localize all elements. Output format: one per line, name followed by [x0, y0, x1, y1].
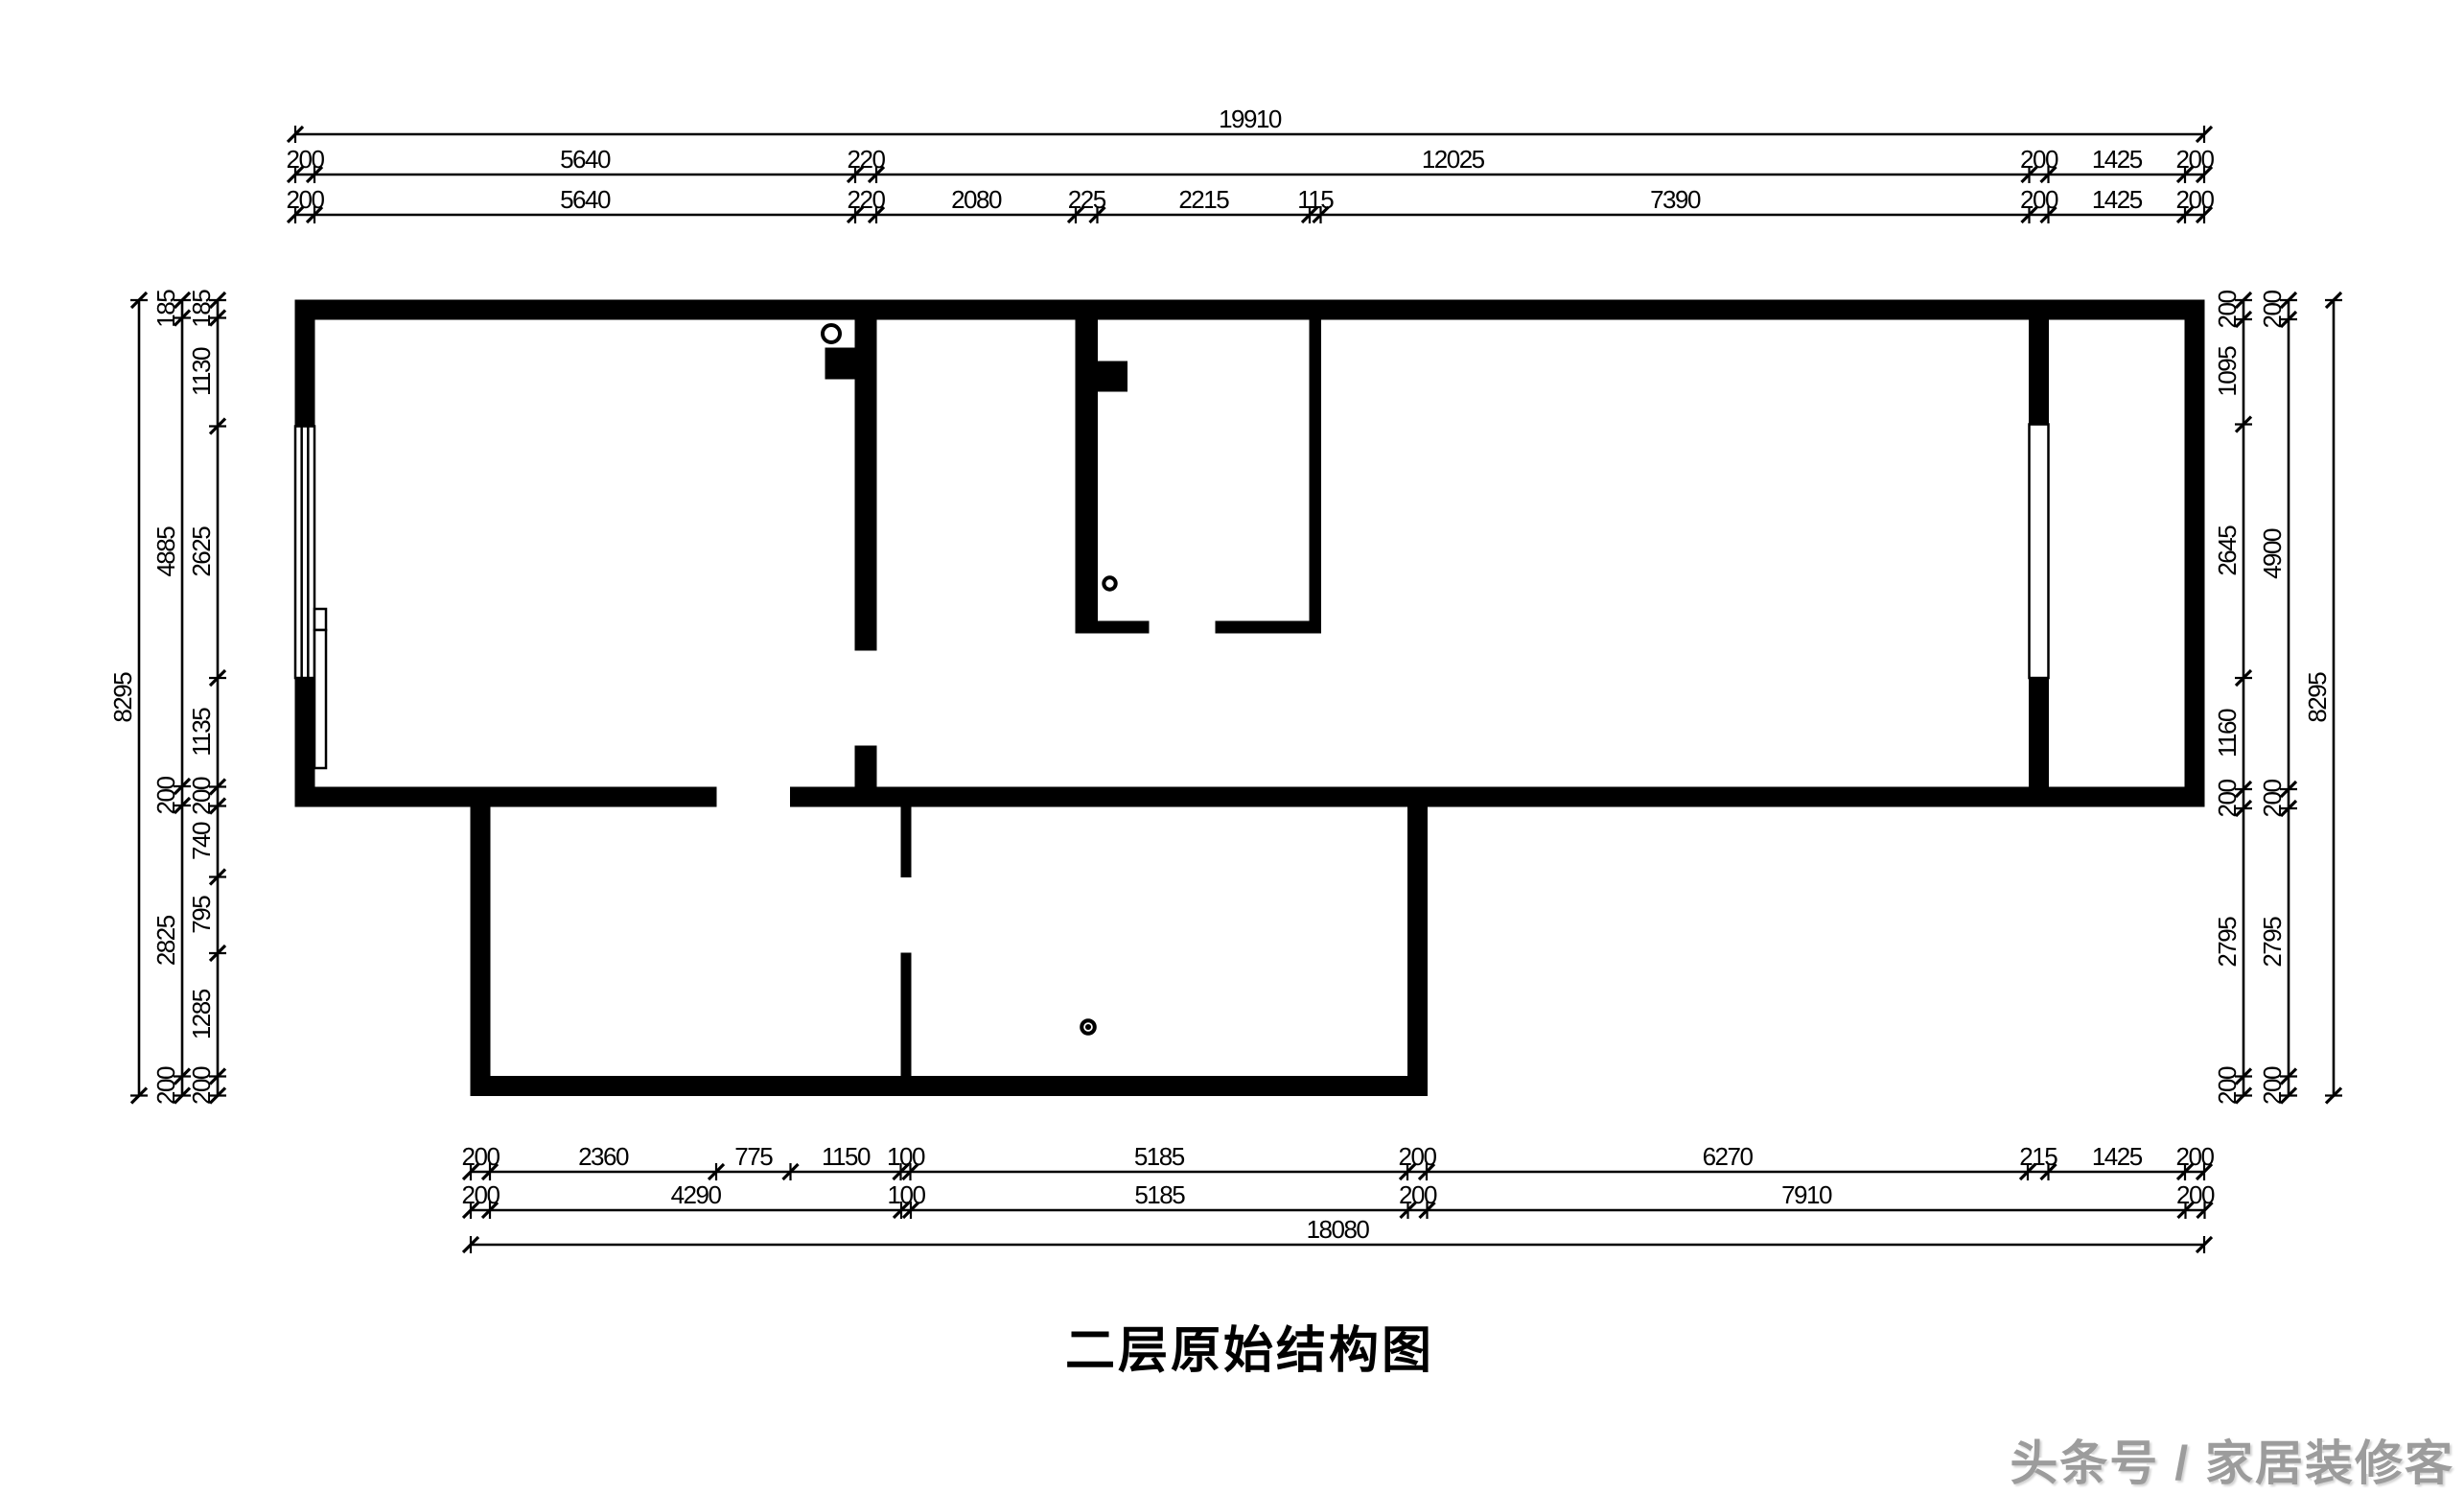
dim-value: 19910 [1219, 105, 1282, 133]
dim-value: 2795 [2213, 917, 2242, 968]
dim-value: 200 [2213, 1066, 2242, 1105]
page-title: 二层原始结构图 [295, 1310, 2204, 1382]
dim-value: 2795 [2258, 917, 2287, 968]
wall-b-lower [2030, 678, 2049, 787]
left-overall: 8295 [108, 292, 148, 1104]
bottom-overall: 18080 [463, 1215, 2212, 1253]
dim-value: 1160 [2213, 709, 2242, 758]
wall-b-opening [2030, 425, 2049, 679]
mid-wall-right [791, 787, 2205, 806]
dim-value: 200 [287, 145, 325, 174]
dim-value: 200 [2176, 185, 2215, 214]
dim-value: 115 [1297, 185, 1334, 214]
dim-value: 7910 [1781, 1180, 1832, 1209]
dim-value: 775 [734, 1142, 773, 1171]
dim-value: 795 [187, 896, 216, 934]
dim-value: 220 [848, 145, 886, 174]
bottom-row-2: 200429010051852007910200 [462, 1180, 2215, 1219]
dim-value: 200 [2258, 1066, 2287, 1105]
pipe-circle-midroom [1104, 577, 1115, 589]
left-col-2: 18548852002825200 [151, 290, 191, 1105]
dim-value: 1425 [2092, 1142, 2143, 1171]
dim-value: 185 [187, 290, 216, 328]
pier-on-wall-a [825, 348, 855, 379]
dim-value: 200 [187, 1066, 216, 1105]
dim-value: 200 [2176, 1180, 2215, 1209]
dim-value: 200 [462, 1142, 500, 1171]
wall-b-upper [2030, 319, 2049, 425]
wall-a-stub [855, 746, 876, 787]
right-col-2: 20049002002795200 [2258, 291, 2297, 1105]
dim-value: 185 [151, 290, 180, 328]
dim-value: 4885 [151, 526, 180, 577]
dim-value: 200 [2020, 145, 2058, 174]
lower-thin-wall-upper [901, 806, 911, 877]
wall-a [855, 319, 876, 650]
mid-wall-left [295, 787, 716, 806]
top-overall: 19910 [288, 105, 2212, 143]
dim-value: 8295 [2303, 672, 2332, 723]
dim-value: 1095 [2213, 346, 2242, 397]
dim-value: 220 [848, 185, 886, 214]
pipe-circle-wall-a [823, 325, 840, 342]
right-wall [2185, 319, 2204, 787]
dim-value: 215 [2019, 1142, 2057, 1171]
dim-value: 1135 [187, 708, 216, 757]
dim-value: 100 [888, 1180, 926, 1209]
dim-value: 2215 [1178, 185, 1229, 214]
left-wall-panel-long [314, 630, 326, 768]
lower-right-wall [1408, 806, 1428, 1077]
wall-d [1310, 319, 1321, 633]
left-wall-panel-small [314, 609, 326, 630]
midroom-stub-left [1098, 621, 1150, 633]
dim-value: 5640 [560, 185, 611, 214]
dim-value: 200 [462, 1180, 500, 1209]
dim-value: 200 [2176, 145, 2215, 174]
dim-value: 200 [151, 1066, 180, 1105]
dim-value: 200 [151, 777, 180, 815]
dim-value: 2080 [951, 185, 1002, 214]
dim-value: 200 [1399, 1180, 1437, 1209]
top-row-2: 2005640220120252001425200 [287, 145, 2215, 183]
details-layer [314, 609, 326, 768]
dim-value: 200 [2213, 291, 2242, 329]
dim-value: 1425 [2092, 145, 2143, 174]
dim-value: 200 [2176, 1142, 2215, 1171]
dim-value: 5185 [1134, 1180, 1185, 1209]
lower-left-wall [471, 806, 490, 1077]
dim-value: 2625 [187, 526, 216, 577]
dim-value: 1285 [187, 989, 216, 1039]
dim-value: 200 [2020, 185, 2058, 214]
floorplan-drawing: 1991020056402201202520014252002005640220… [0, 0, 2464, 1492]
dim-value: 200 [2258, 780, 2287, 818]
dim-value: 5640 [560, 145, 611, 174]
dim-value: 1130 [187, 347, 216, 396]
dim-value: 2825 [151, 915, 180, 966]
dim-value: 2645 [2213, 525, 2242, 576]
dim-value: 200 [2213, 780, 2242, 818]
dim-value: 200 [187, 777, 216, 815]
right-overall: 8295 [2303, 292, 2342, 1104]
walls-layer [295, 300, 2204, 1096]
dim-value: 4290 [671, 1180, 722, 1209]
wall-c [1076, 319, 1098, 633]
lower-bottom-wall [471, 1077, 1428, 1096]
dim-value: 8295 [108, 672, 137, 723]
top-wall [295, 300, 2204, 319]
right-col-1: 2001095264511602002795200 [2213, 291, 2252, 1105]
dim-value: 200 [2258, 291, 2287, 329]
dim-value: 12025 [1422, 145, 1485, 174]
dim-value: 6270 [1703, 1142, 1754, 1171]
top-row-3: 20056402202080225221511573902001425200 [287, 185, 2215, 223]
dim-value: 100 [887, 1142, 925, 1171]
windows-layer [295, 425, 2049, 679]
dim-value: 740 [187, 822, 216, 860]
dim-value: 2360 [578, 1142, 629, 1171]
left-col-3: 1851130262511352007407951285200 [187, 290, 226, 1105]
dim-value: 225 [1068, 185, 1106, 214]
midroom-stub-right [1216, 621, 1310, 633]
dim-value: 18080 [1307, 1215, 1370, 1244]
left-wall-upper [295, 319, 314, 427]
bottom-row-1: 20023607751150100518520062702151425200 [462, 1142, 2215, 1180]
lower-thin-wall-lower [901, 953, 911, 1077]
drain-circle-lower-dot [1085, 1024, 1091, 1030]
dim-value: 4900 [2258, 528, 2287, 579]
dim-value: 7390 [1650, 185, 1701, 214]
dim-value: 1150 [822, 1142, 871, 1171]
dim-value: 1425 [2092, 185, 2143, 214]
pier-on-wall-c [1098, 362, 1127, 391]
watermark-text: 头条号 / 家居装修客 [2010, 1425, 2454, 1494]
dim-value: 200 [287, 185, 325, 214]
left-window [295, 427, 314, 679]
dim-value: 200 [1399, 1142, 1437, 1171]
dim-value: 5185 [1134, 1142, 1185, 1171]
left-wall-lower [295, 678, 314, 787]
